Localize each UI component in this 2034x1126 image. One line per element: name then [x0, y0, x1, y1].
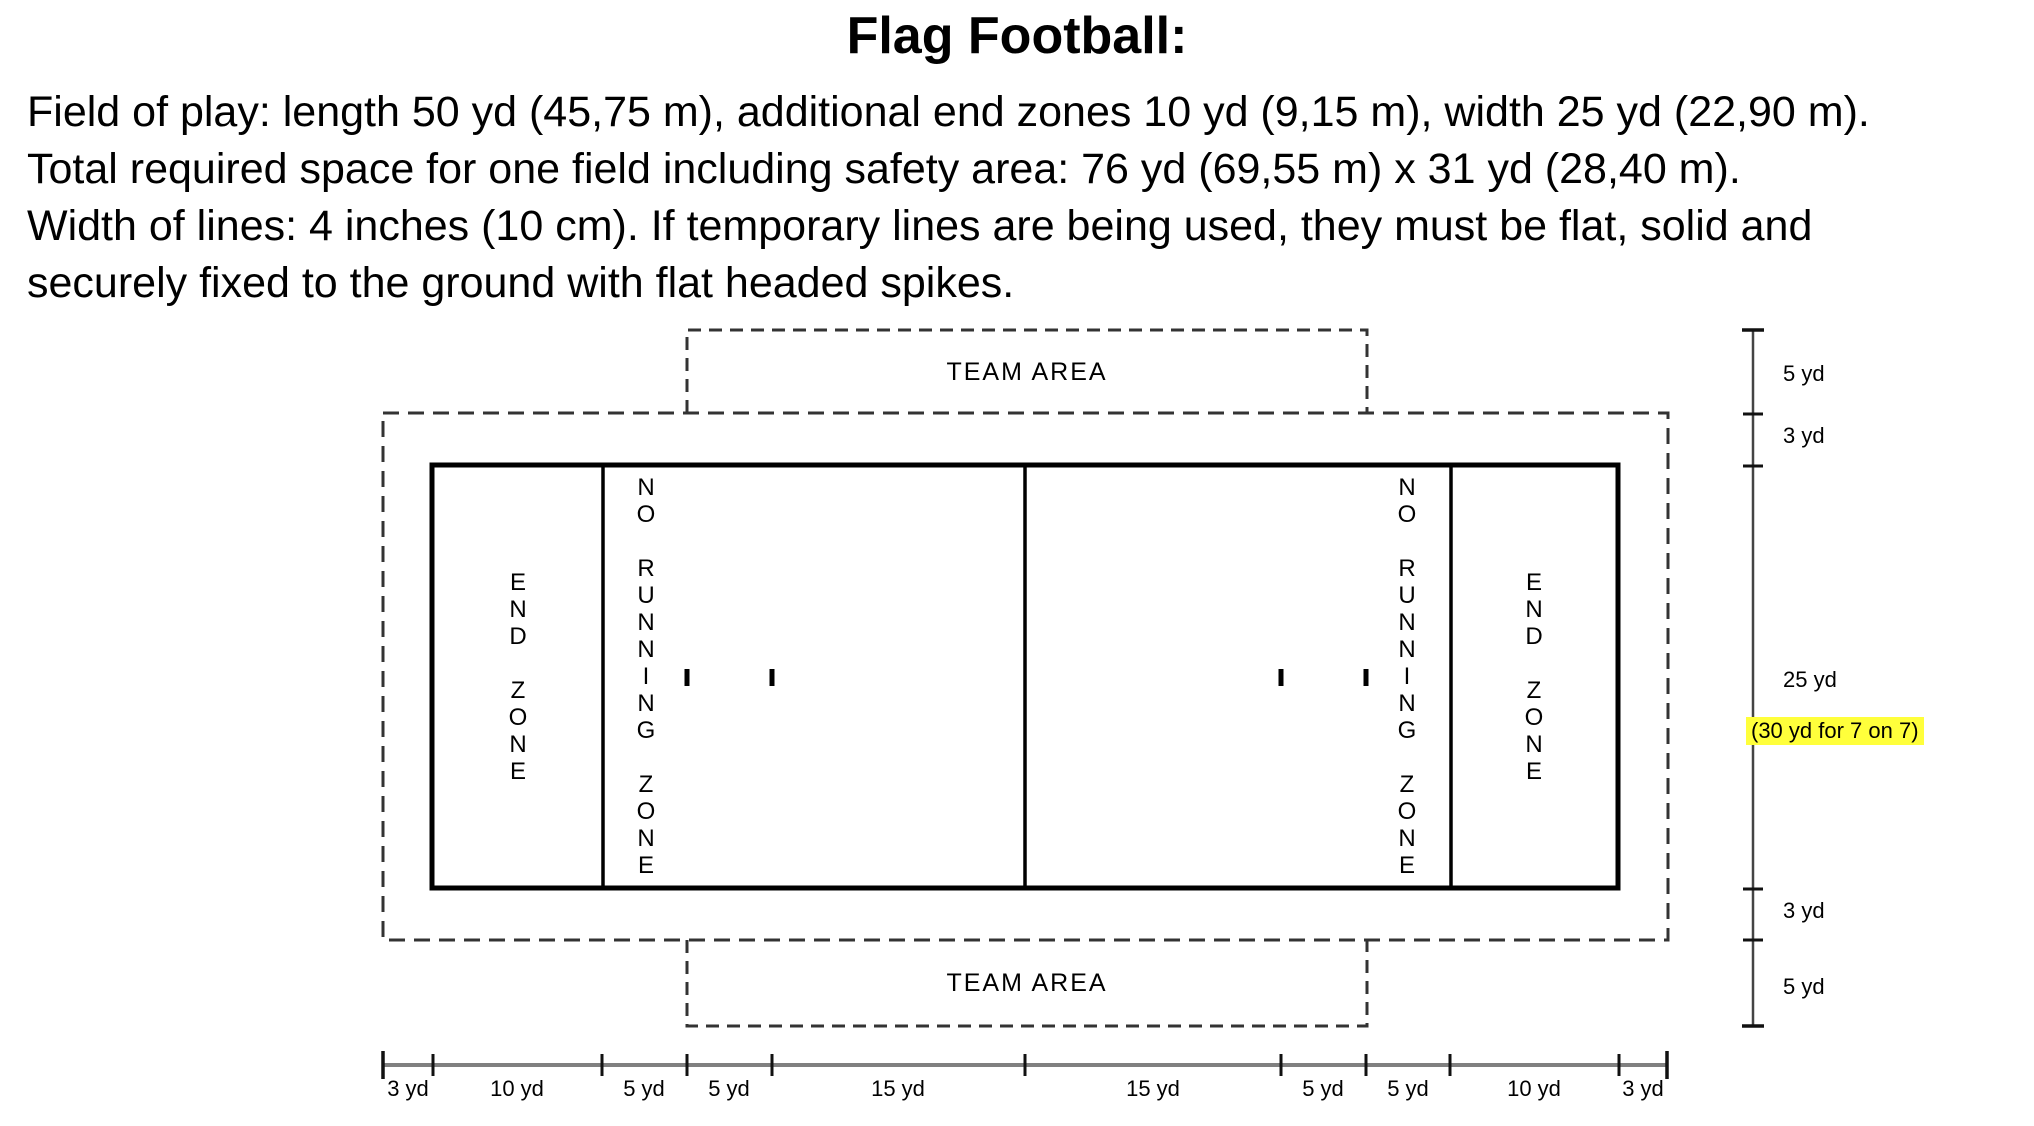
height-ruler: [1742, 330, 1764, 1026]
no-running-zone-right-label: N O R U N N I N G Z O N E: [1377, 474, 1437, 879]
width-label-3yd-right: 3 yd: [1622, 1076, 1664, 1102]
width-label-10yd-left: 10 yd: [490, 1076, 544, 1102]
no-running-zone-left-label: N O R U N N I N G Z O N E: [616, 474, 676, 879]
end-zone-left-label: E N D Z O N E: [488, 569, 548, 785]
team-area-top-label: TEAM AREA: [687, 358, 1367, 387]
width-label-5yd-1: 5 yd: [623, 1076, 665, 1102]
width-label-5yd-2: 5 yd: [708, 1076, 750, 1102]
width-label-15yd-left: 15 yd: [871, 1076, 925, 1102]
field-diagram: [0, 0, 2034, 1126]
page: Flag Football: Field of play: length 50 …: [0, 0, 2034, 1126]
end-zone-right-label: E N D Z O N E: [1504, 569, 1564, 785]
height-label-25yd: 25 yd: [1783, 667, 1837, 693]
width-label-10yd-right: 10 yd: [1507, 1076, 1561, 1102]
width-label-5yd-4: 5 yd: [1387, 1076, 1429, 1102]
height-label-3yd-bottom: 3 yd: [1783, 898, 1825, 924]
team-area-bottom-label: TEAM AREA: [687, 969, 1367, 998]
width-label-5yd-3: 5 yd: [1302, 1076, 1344, 1102]
height-label-5yd-bottom: 5 yd: [1783, 974, 1825, 1000]
width-label-3yd-left: 3 yd: [387, 1076, 429, 1102]
height-label-5yd-top: 5 yd: [1783, 361, 1825, 387]
height-label-3yd-top: 3 yd: [1783, 423, 1825, 449]
width-ruler: [383, 1051, 1667, 1079]
height-label-30yd-7on7: (30 yd for 7 on 7): [1746, 717, 1924, 745]
width-label-15yd-right: 15 yd: [1126, 1076, 1180, 1102]
